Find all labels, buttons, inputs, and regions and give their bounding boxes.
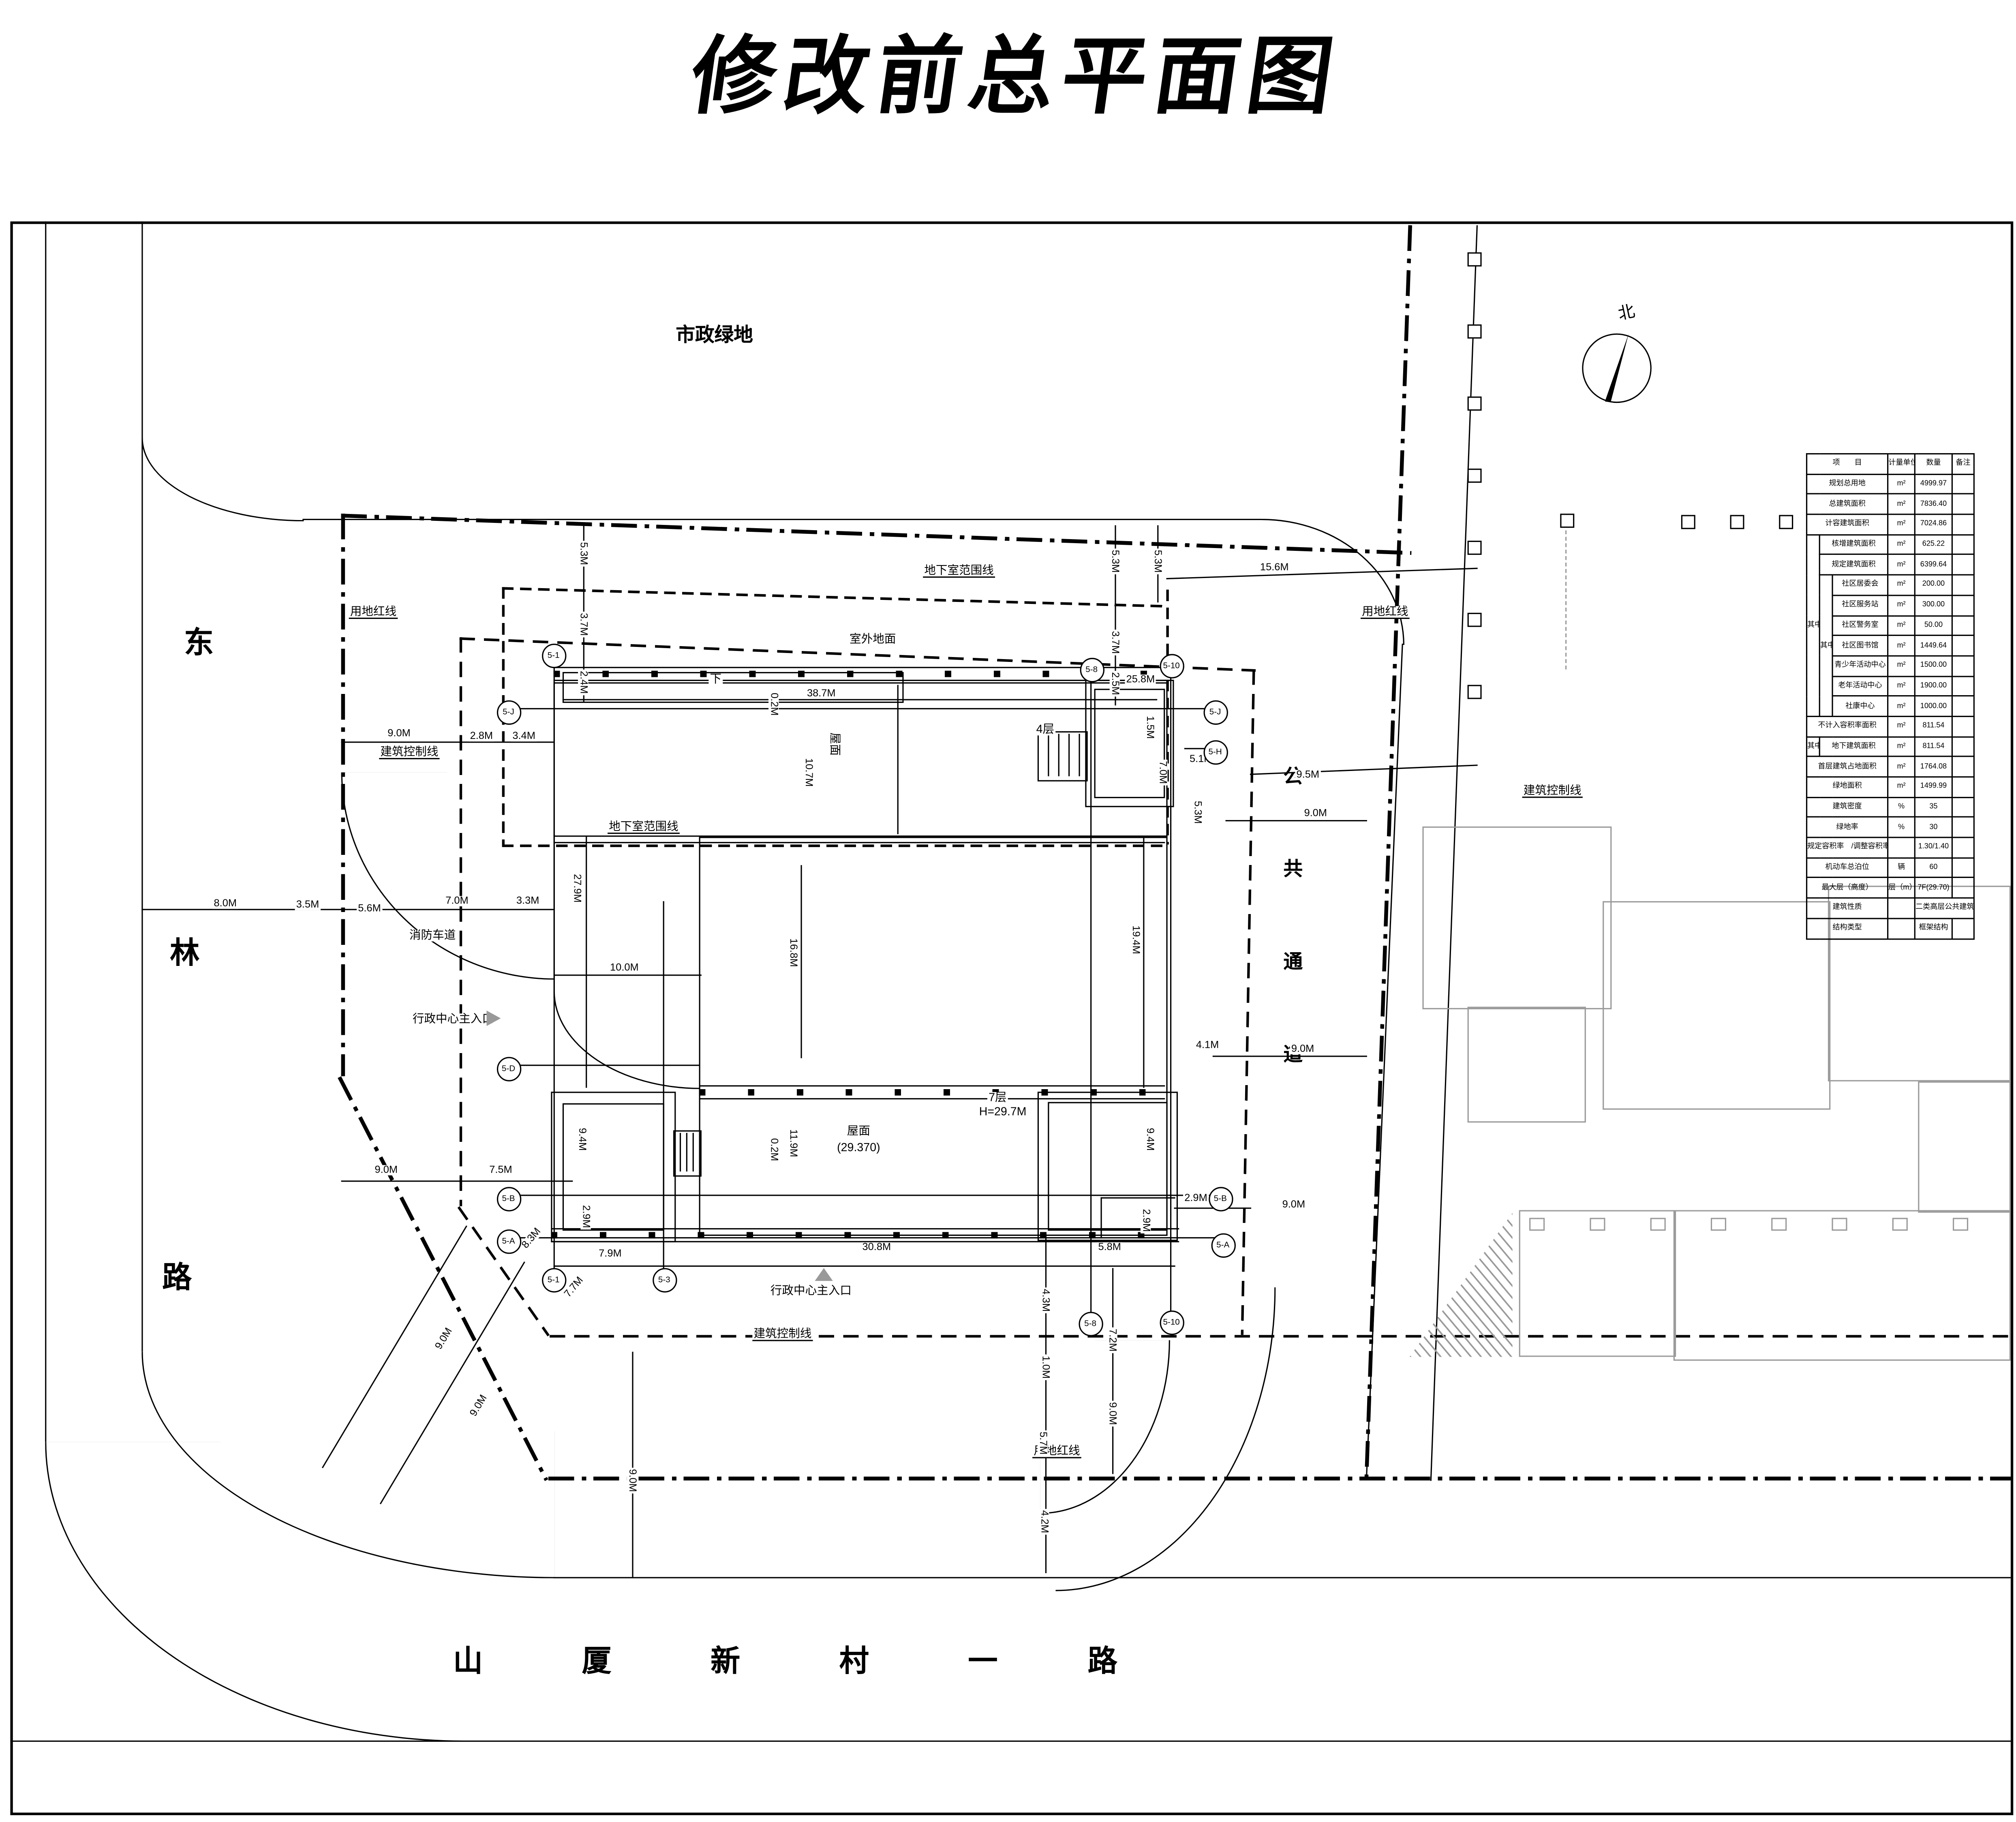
dimension-label: 38.7M xyxy=(806,689,837,699)
table-cell: 首层建筑占地面积 xyxy=(1807,757,1888,777)
table-cell: 811.54 xyxy=(1915,737,1952,757)
table-cell: 层（m） xyxy=(1888,878,1915,898)
line xyxy=(1226,820,1367,821)
dimension-label: 4.3M xyxy=(1040,1287,1050,1313)
neighbor-building-outline xyxy=(1918,1081,2011,1213)
table-cell: 其中 xyxy=(1807,737,1820,757)
table-cell: m² xyxy=(1888,615,1915,636)
table-cell: 30 xyxy=(1915,817,1952,837)
table-cell: 社区警务室 xyxy=(1832,615,1888,636)
table-cell xyxy=(1952,696,1974,716)
public-passage-label: 通 xyxy=(1283,948,1305,975)
building-outline xyxy=(563,1103,664,1231)
marker-square xyxy=(1468,469,1482,483)
dimension-label: 3.7M xyxy=(578,612,588,637)
table-cell: 4999.97 xyxy=(1915,474,1952,494)
annotation-label: 建筑控制线 xyxy=(379,746,439,760)
dimension-label: 2.8M xyxy=(469,731,494,741)
table-cell xyxy=(1952,494,1974,514)
road-label-shanxia: 一 xyxy=(968,1636,997,1680)
table-cell xyxy=(1952,595,1974,615)
marker-square xyxy=(1468,541,1482,555)
marker-square xyxy=(1468,685,1482,699)
dimension-label: 10.7M xyxy=(803,757,813,788)
annotation-label: H=29.7M xyxy=(978,1106,1028,1118)
dimension-label: 11.9M xyxy=(788,1128,798,1158)
annotation-label: 消防车道 xyxy=(408,930,457,942)
annotation-label: 室外地面 xyxy=(848,634,897,646)
dimension-label: 7.0M xyxy=(1157,760,1167,785)
table-cell: 总建筑面积 xyxy=(1807,494,1888,514)
dimension-label: 4.1M xyxy=(1195,1040,1220,1050)
table-cell: m² xyxy=(1888,777,1915,797)
neighbor-building-outline xyxy=(1422,826,1612,1009)
dimension-label: 9.0M xyxy=(386,729,412,739)
annotation-label: 地下室范围线 xyxy=(608,821,680,835)
table-cell: m² xyxy=(1888,514,1915,535)
dimension-label: 25.8M xyxy=(1125,674,1156,685)
neighbor-dash xyxy=(1565,531,1567,670)
dimension-label: 2.9M xyxy=(1183,1193,1209,1203)
annotation-label: 地下室范围线 xyxy=(923,565,995,578)
dimension-label: 2.5M xyxy=(1110,671,1120,696)
table-cell: 二类高层公共建筑 xyxy=(1915,898,1974,918)
road-label-donglin: 路 xyxy=(162,1252,192,1296)
road-label-donglin: 林 xyxy=(170,928,199,972)
table-cell: 1900.00 xyxy=(1915,676,1952,696)
table-cell: % xyxy=(1888,797,1915,818)
dimension-label: 9.0M xyxy=(1303,809,1328,819)
neighbor-column xyxy=(1771,1218,1787,1231)
table-cell: 结构类型 xyxy=(1807,918,1888,938)
annotation-label: 4层 xyxy=(1035,724,1055,736)
dimension-label: 9.0M xyxy=(373,1165,399,1175)
table-cell xyxy=(1888,898,1915,918)
line xyxy=(554,1265,1175,1266)
dimension-label: 0.2M xyxy=(768,1137,779,1163)
table-cell: 35 xyxy=(1915,797,1952,818)
annotation-label: 用地红线 xyxy=(1361,606,1410,619)
table-cell: 社区图书馆 xyxy=(1832,636,1888,656)
dimension-label: 2.4M xyxy=(578,670,588,695)
table-cell: 50.00 xyxy=(1915,615,1952,636)
table-cell xyxy=(1952,656,1974,676)
line xyxy=(632,1352,633,1577)
dimension-label: 9.0M xyxy=(627,1468,637,1493)
table-cell: 建筑密度 xyxy=(1807,797,1888,818)
table-cell xyxy=(1952,777,1974,797)
dimension-label: 5.3M xyxy=(578,541,588,566)
public-passage-label: 共 xyxy=(1283,855,1305,882)
table-cell: m² xyxy=(1888,474,1915,494)
dimension-label: 4.2M xyxy=(1039,1509,1049,1535)
dimension-label: 5.8M xyxy=(1097,1242,1122,1252)
table-cell: m² xyxy=(1888,555,1915,575)
table-cell: 7024.86 xyxy=(1915,514,1952,535)
table-cell: m² xyxy=(1888,535,1915,555)
page: 修改前总平面图 东林路山厦新村一路公共通道 市政绿地用地红线用地红线用地红线建筑… xyxy=(0,0,2016,1822)
table-cell: 1000.00 xyxy=(1915,696,1952,716)
table-cell: 计量单位 xyxy=(1888,454,1915,474)
table-cell: 7836.40 xyxy=(1915,494,1952,514)
marker-square xyxy=(1468,324,1482,338)
dimension-label: 7.2M xyxy=(1107,1327,1117,1353)
neighbor-column xyxy=(1529,1218,1545,1231)
table-cell: 811.54 xyxy=(1915,716,1952,737)
neighbor-column xyxy=(1590,1218,1605,1231)
annotation-label: 7层 xyxy=(987,1092,1008,1104)
table-cell xyxy=(1952,716,1974,737)
table-cell: 社康中心 xyxy=(1832,696,1888,716)
dimension-label: 5.3M xyxy=(1192,800,1202,825)
north-label: 北 xyxy=(1615,302,1638,323)
table-cell: 1.30/1.40 xyxy=(1915,837,1952,858)
table-cell: 社区居委会 xyxy=(1832,575,1888,595)
neighbor-column xyxy=(1832,1218,1847,1231)
table-cell: 计容建筑面积 xyxy=(1807,514,1888,535)
dimension-label: 9.0M xyxy=(1290,1044,1316,1054)
line xyxy=(10,1741,2011,1742)
table-cell xyxy=(1952,676,1974,696)
annotation-label: 建筑控制线 xyxy=(1522,785,1583,799)
dimension-label: 8.0M xyxy=(212,899,238,909)
table-cell xyxy=(1888,837,1915,858)
table-cell: 60 xyxy=(1915,858,1952,878)
table-cell xyxy=(1952,535,1974,555)
marker-square xyxy=(1468,252,1482,266)
project-stats-table: 项 目计量单位数量备注规划总用地m²4999.97总建筑面积m²7836.40计… xyxy=(1806,453,1975,939)
marker-square xyxy=(1779,515,1793,529)
table-cell: 1449.64 xyxy=(1915,636,1952,656)
table-cell: 规定容积率 /调整容积率 xyxy=(1807,837,1888,858)
colonnade xyxy=(554,667,1169,681)
line xyxy=(341,1180,573,1181)
table-cell: 1499.99 xyxy=(1915,777,1952,797)
table-cell: 辆 xyxy=(1888,858,1915,878)
neighbor-building-outline xyxy=(1674,1210,2011,1361)
table-cell xyxy=(1952,817,1974,837)
table-cell xyxy=(1952,858,1974,878)
neighbor-building-outline xyxy=(1468,1007,1586,1123)
line xyxy=(141,221,143,1352)
annotation-label: 屋面 xyxy=(828,731,840,757)
road-label-shanxia: 村 xyxy=(839,1636,869,1680)
line xyxy=(554,974,702,975)
table-cell: m² xyxy=(1888,696,1915,716)
table-cell: 1500.00 xyxy=(1915,656,1952,676)
site-plan-canvas: 修改前总平面图 东林路山厦新村一路公共通道 市政绿地用地红线用地红线用地红线建筑… xyxy=(0,0,2016,1822)
building-outline xyxy=(1094,689,1165,798)
marker-square xyxy=(1468,396,1482,411)
table-cell: 建筑性质 xyxy=(1807,898,1888,918)
marker-square xyxy=(1468,613,1482,627)
dimension-label: 16.8M xyxy=(788,937,798,968)
table-cell: m² xyxy=(1888,757,1915,777)
table-cell: 6399.64 xyxy=(1915,555,1952,575)
table-cell: 625.22 xyxy=(1915,535,1952,555)
dimension-label: 9.5M xyxy=(1295,770,1320,780)
table-cell: 框架结构 xyxy=(1915,918,1952,938)
table-cell: m² xyxy=(1888,716,1915,737)
table-cell: % xyxy=(1888,817,1915,837)
dimension-label: 7.0M xyxy=(444,896,470,906)
table-cell: m² xyxy=(1888,595,1915,615)
neighbor-column xyxy=(1650,1218,1666,1231)
annotation-label: 建筑控制线 xyxy=(752,1328,813,1342)
table-cell: 备注 xyxy=(1952,454,1974,474)
dimension-label: 3.3M xyxy=(515,896,541,906)
dimension-label: 1.5M xyxy=(1144,715,1154,740)
building-outline xyxy=(673,1130,702,1177)
annotation-label: 行政中心主入口 xyxy=(769,1285,853,1297)
table-cell: 其中 xyxy=(1807,535,1820,716)
road-label-shanxia: 新 xyxy=(711,1636,740,1680)
dimension-label: 3.5M xyxy=(295,900,321,910)
table-cell: 其中 xyxy=(1819,575,1832,716)
dimension-label: 30.8M xyxy=(861,1242,892,1252)
table-cell: m² xyxy=(1888,575,1915,595)
table-cell: 核增建筑面积 xyxy=(1819,535,1888,555)
table-cell: 规定建筑面积 xyxy=(1819,555,1888,575)
north-needle-icon xyxy=(1605,332,1629,403)
dimension-label: 3.7M xyxy=(1110,629,1120,655)
road-label-shanxia: 路 xyxy=(1088,1636,1117,1680)
table-cell: 7F(29.70) xyxy=(1915,878,1952,898)
table-cell: m² xyxy=(1888,737,1915,757)
table-cell: 不计入容积率面积 xyxy=(1807,716,1888,737)
dimension-label: 5.7M xyxy=(1038,1430,1048,1456)
table-cell: 数量 xyxy=(1915,454,1952,474)
dimension-label: 9.4M xyxy=(577,1126,587,1152)
stats-table: 项 目计量单位数量备注规划总用地m²4999.97总建筑面积m²7836.40计… xyxy=(1806,453,1975,939)
table-cell: m² xyxy=(1888,676,1915,696)
table-cell: m² xyxy=(1888,636,1915,656)
dimension-label: 9.0M xyxy=(1281,1200,1306,1210)
table-cell xyxy=(1952,636,1974,656)
green-space-label: 市政绿地 xyxy=(674,326,754,346)
table-cell xyxy=(1952,514,1974,535)
table-cell: 老年活动中心 xyxy=(1832,676,1888,696)
table-cell: 项 目 xyxy=(1807,454,1888,474)
line xyxy=(554,1577,2011,1578)
marker-square xyxy=(1560,514,1574,528)
dimension-label: 2.9M xyxy=(580,1204,591,1229)
dimension-label: 2.9M xyxy=(1141,1208,1151,1233)
table-cell: 规划总用地 xyxy=(1807,474,1888,494)
table-cell: 社区服务站 xyxy=(1832,595,1888,615)
drawing-title: 修改前总平面图 xyxy=(506,8,1528,131)
table-cell: 绿地率 xyxy=(1807,817,1888,837)
dimension-label: 27.9M xyxy=(571,873,582,904)
table-cell: 1764.08 xyxy=(1915,757,1952,777)
dimension-label: 19.4M xyxy=(1130,924,1141,955)
dimension-label: 9.4M xyxy=(1144,1126,1154,1152)
table-cell xyxy=(1952,837,1974,858)
neighbor-column xyxy=(1711,1218,1726,1231)
table-cell xyxy=(1952,757,1974,777)
neighbor-column xyxy=(1953,1218,1968,1231)
neighbor-building-outline xyxy=(1603,901,1830,1110)
dimension-label: 3.4M xyxy=(511,731,537,741)
entrance-arrow-icon xyxy=(815,1268,833,1281)
line xyxy=(548,1477,2011,1481)
annotation-label: 下 xyxy=(708,674,723,686)
dimension-label: 5.3M xyxy=(1110,548,1120,574)
table-cell: m² xyxy=(1888,656,1915,676)
table-cell: 青少年活动中心 xyxy=(1832,656,1888,676)
table-cell xyxy=(1952,575,1974,595)
table-cell xyxy=(1952,797,1974,818)
annotation-label: 用地红线 xyxy=(349,606,398,619)
line xyxy=(341,741,554,742)
table-cell xyxy=(1952,555,1974,575)
road-label-shanxia: 厦 xyxy=(582,1636,612,1680)
table-cell xyxy=(1952,615,1974,636)
dimension-label: 7.9M xyxy=(597,1249,623,1259)
annotation-label: 行政中心主入口 xyxy=(411,1013,495,1026)
table-cell: 300.00 xyxy=(1915,595,1952,615)
dimension-label: 9.0M xyxy=(1107,1401,1117,1426)
road-label-donglin: 东 xyxy=(184,618,214,662)
dimension-label: 7.5M xyxy=(488,1165,514,1175)
line xyxy=(45,221,46,1442)
annotation-label: 屋面 xyxy=(846,1126,872,1138)
marker-square xyxy=(1681,515,1695,529)
road-label-shanxia: 山 xyxy=(453,1636,483,1680)
table-cell: 最大层（高度） xyxy=(1807,878,1888,898)
table-cell: 机动车总泊位 xyxy=(1807,858,1888,878)
table-cell xyxy=(1952,474,1974,494)
annotation-label: (29.370) xyxy=(836,1142,882,1154)
building-outline xyxy=(1038,731,1088,781)
table-cell xyxy=(1952,737,1974,757)
marker-square xyxy=(1730,515,1744,529)
dimension-label: 15.6M xyxy=(1259,563,1290,573)
table-cell xyxy=(1888,918,1915,938)
table-cell: m² xyxy=(1888,494,1915,514)
colonnade xyxy=(551,1228,1179,1242)
dimension-label: 1.0M xyxy=(1040,1354,1050,1380)
neighbor-building-outline xyxy=(1519,1210,1676,1357)
table-cell xyxy=(1952,878,1974,898)
table-cell: 200.00 xyxy=(1915,575,1952,595)
entrance-arrow-icon xyxy=(487,1011,501,1026)
neighbor-column xyxy=(1892,1218,1908,1231)
dimension-label: 5.6M xyxy=(357,904,382,914)
dimension-label: 5.3M xyxy=(1152,548,1162,574)
dimension-label: 10.0M xyxy=(609,963,640,973)
north-arrow xyxy=(1582,334,1652,403)
table-cell: 绿地面积 xyxy=(1807,777,1888,797)
colonnade xyxy=(699,1085,1165,1099)
table-cell xyxy=(1952,918,1974,938)
dimension-label: 0.2M xyxy=(768,692,779,717)
table-cell: 地下建筑面积 xyxy=(1819,737,1888,757)
